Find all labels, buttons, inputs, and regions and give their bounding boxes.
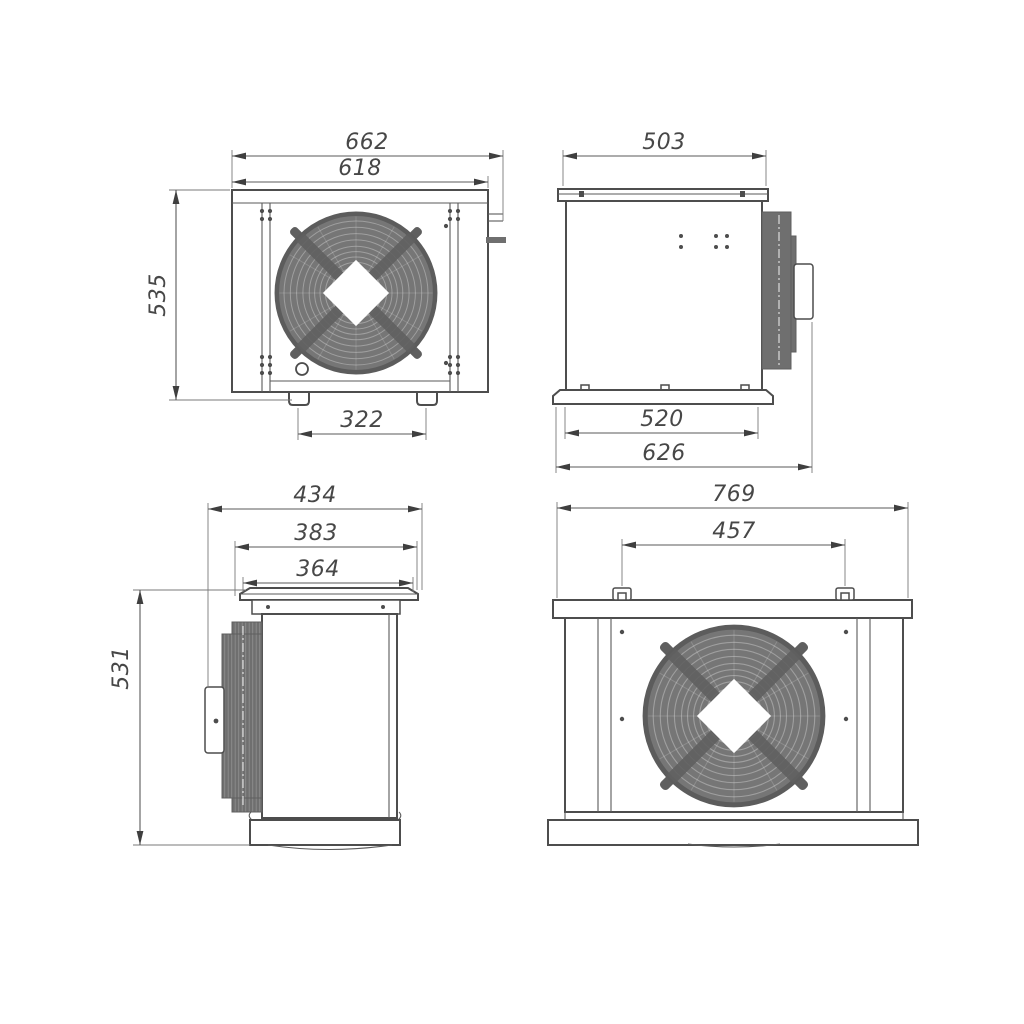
front-dim-feet-spacing: 322 bbox=[298, 408, 426, 440]
base-plate-side bbox=[553, 385, 773, 404]
side-dim-top-width: 503 bbox=[563, 130, 766, 186]
drain-hole bbox=[296, 363, 308, 375]
side2-dim-duct-width: 364 bbox=[243, 557, 413, 592]
mount-tab-left bbox=[613, 588, 631, 600]
dim-label-383: 383 bbox=[294, 521, 338, 546]
drawing-canvas: 662 618 535 322 bbox=[0, 0, 1024, 1024]
side2-cabinet bbox=[205, 588, 418, 850]
pipe-bracket-2 bbox=[205, 687, 224, 753]
fan-guard-front bbox=[277, 214, 435, 372]
base-pan-back bbox=[548, 812, 918, 847]
side-dim-base-width: 520 bbox=[565, 407, 758, 439]
dim-label-531: 531 bbox=[109, 646, 134, 690]
dim-label-769: 769 bbox=[712, 482, 756, 507]
front-dim-body-width: 618 bbox=[232, 156, 488, 188]
technical-drawing: 662 618 535 322 bbox=[0, 0, 1024, 1024]
mount-tab-right bbox=[836, 588, 854, 600]
dim-label-364: 364 bbox=[296, 557, 340, 582]
pipe-bracket bbox=[794, 264, 813, 319]
dim-label-322: 322 bbox=[340, 408, 384, 433]
dim-label-626: 626 bbox=[642, 441, 686, 466]
dim-label-520: 520 bbox=[640, 407, 684, 432]
dim-label-434: 434 bbox=[293, 483, 337, 508]
left-side-view: 434 383 364 531 bbox=[109, 483, 422, 850]
dim-label-662: 662 bbox=[345, 130, 389, 155]
back-dim-bracket-spacing: 457 bbox=[622, 519, 845, 586]
coil-block-side bbox=[762, 212, 796, 369]
vent-holes bbox=[679, 234, 729, 249]
coil-block-finned bbox=[222, 622, 262, 812]
back-view: 769 457 bbox=[548, 482, 918, 847]
dim-label-618: 618 bbox=[338, 156, 382, 181]
fan-guard-back bbox=[645, 627, 823, 805]
right-side-view: 503 520 626 bbox=[553, 130, 813, 473]
side-cabinet bbox=[553, 189, 813, 404]
feet bbox=[289, 392, 437, 405]
front-view: 662 618 535 322 bbox=[146, 130, 506, 440]
dim-label-457: 457 bbox=[712, 519, 756, 544]
dim-label-503: 503 bbox=[642, 130, 686, 155]
dim-label-535: 535 bbox=[146, 273, 171, 317]
